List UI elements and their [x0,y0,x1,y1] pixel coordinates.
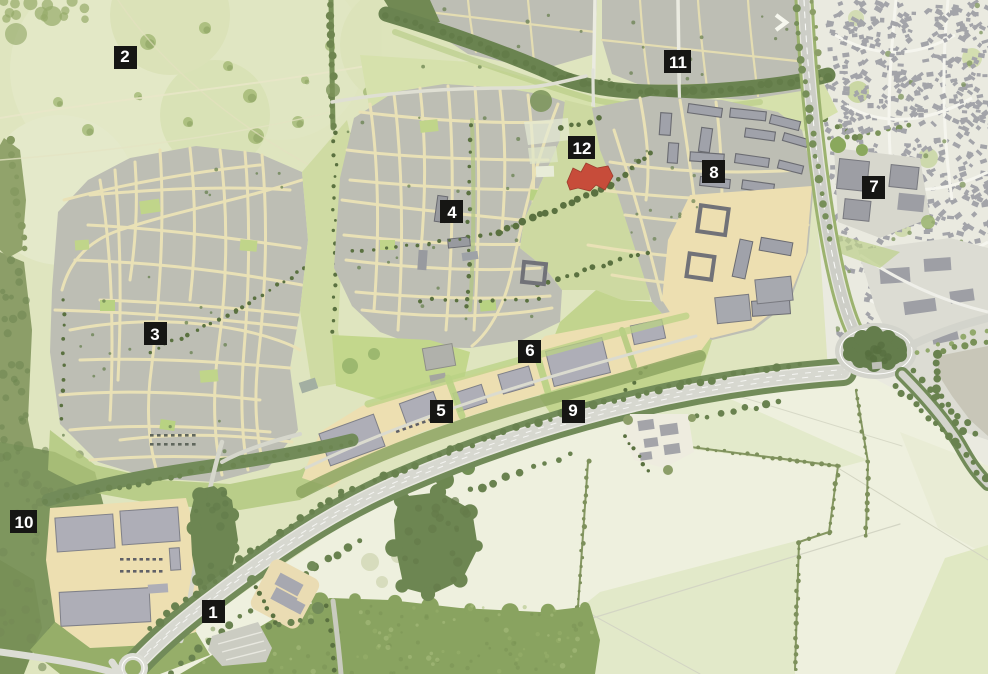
svg-text:2: 2 [120,47,129,66]
svg-text:11: 11 [669,53,687,72]
svg-text:7: 7 [869,177,878,196]
svg-text:1: 1 [208,603,217,622]
svg-text:6: 6 [525,341,534,360]
svg-text:5: 5 [436,401,445,420]
svg-text:9: 9 [568,401,577,420]
svg-text:12: 12 [573,139,592,158]
svg-text:3: 3 [150,325,159,344]
svg-text:10: 10 [15,513,34,532]
svg-text:4: 4 [447,203,457,222]
svg-text:8: 8 [709,163,718,182]
